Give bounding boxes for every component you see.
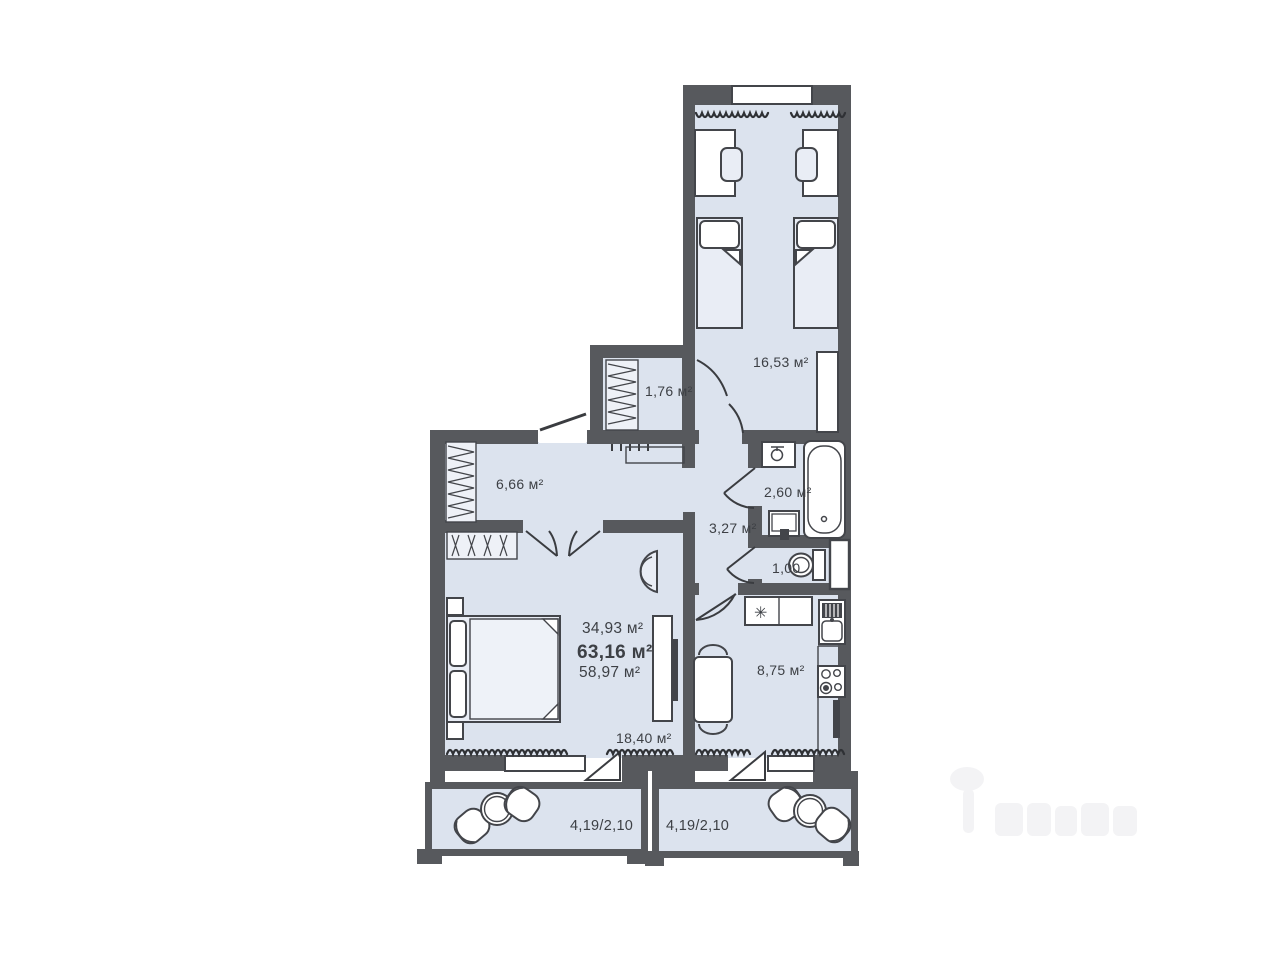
tv [672,639,678,701]
floor-hallway [443,442,683,522]
floor-plan: ✳ 16,53 м² 1,76 м² 6,66 м² 2,60 [0,0,1280,957]
dining-table [694,657,732,722]
wall [813,755,851,771]
label-summary-total: 63,16 м² [577,642,653,663]
wall [587,430,699,444]
wall [683,100,695,358]
sink-drainer [822,603,842,618]
pillow [450,671,466,717]
label-balcony-right: 4,19/2,10 [666,818,729,834]
chair [721,148,742,181]
radiator [833,700,840,738]
label-summary-reduced: 58,97 м² [579,664,640,681]
pillow [700,221,739,248]
pillow [450,621,466,666]
label-hallway-area: 6,66 м² [496,476,544,492]
entry-opening [539,431,586,443]
sink-basin [822,621,842,641]
window-bedroom [732,86,812,104]
sink-pedestal [780,529,789,540]
label-kitchen-area: 8,75 м² [757,662,805,678]
wall [603,520,683,533]
floor-gap-bedroom-door [698,428,742,446]
tv-console [653,616,672,721]
wardrobe [817,352,838,432]
wall [430,430,445,771]
label-balcony-left: 4,19/2,10 [570,818,633,834]
floor-corridor [695,442,750,588]
wall [695,755,728,771]
chair [796,148,817,181]
toilet-tank [813,550,825,580]
label-closet-area: 1,76 м² [645,383,693,399]
floor-gap-living-door [523,518,603,534]
label-summary-living: 34,93 м² [582,620,643,637]
watermark [950,767,1137,836]
window-kitchen [768,756,814,771]
floor-passage [682,468,696,513]
mattress [470,619,558,719]
wall [430,755,505,771]
label-corridor-area: 3,27 м² [709,520,757,536]
pillow [797,221,835,248]
fridge-icon: ✳ [754,605,768,622]
wall [622,755,695,771]
faucet [830,618,834,622]
nightstand [447,598,463,615]
label-living-area: 18,40 м² [616,730,672,746]
window-living [505,756,585,771]
wall [748,444,762,468]
room-closet [606,360,638,430]
wall [590,345,603,444]
wall [683,583,699,595]
nightstand [447,721,463,739]
wall [590,345,695,358]
label-bathroom-area: 2,60 м² [764,484,812,500]
entry-door-leaf [540,414,586,430]
wall [683,512,695,771]
label-bedroom-area: 16,53 м² [753,354,809,370]
floor-plan-canvas: ✳ 16,53 м² 1,76 м² 6,66 м² 2,60 [0,0,1280,957]
ventilation-shaft [830,540,849,589]
floor-gap-kitchen-door [696,583,738,597]
label-wc-area: 1,00 [772,560,800,576]
washing-machine [762,442,795,467]
